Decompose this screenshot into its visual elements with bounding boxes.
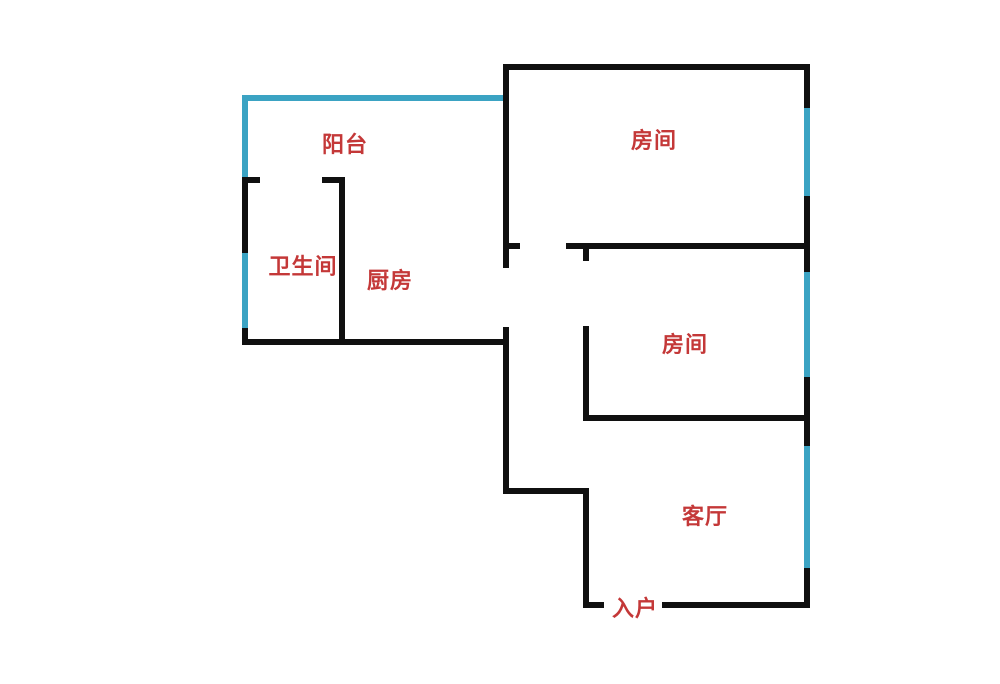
- room-label-room-1: 房间: [631, 131, 677, 153]
- room-label-balcony: 阳台: [322, 135, 368, 157]
- room-label-room-2: 房间: [662, 335, 708, 357]
- room-label-kitchen: 厨房: [367, 271, 413, 293]
- room-label-bathroom: 卫生间: [268, 257, 337, 279]
- room-label-entrance: 入户: [612, 599, 658, 621]
- labels-layer: 阳台房间卫生间厨房房间客厅入户: [0, 0, 1000, 684]
- floor-plan-canvas: 阳台房间卫生间厨房房间客厅入户: [0, 0, 1000, 684]
- room-label-living-room: 客厅: [682, 507, 728, 529]
